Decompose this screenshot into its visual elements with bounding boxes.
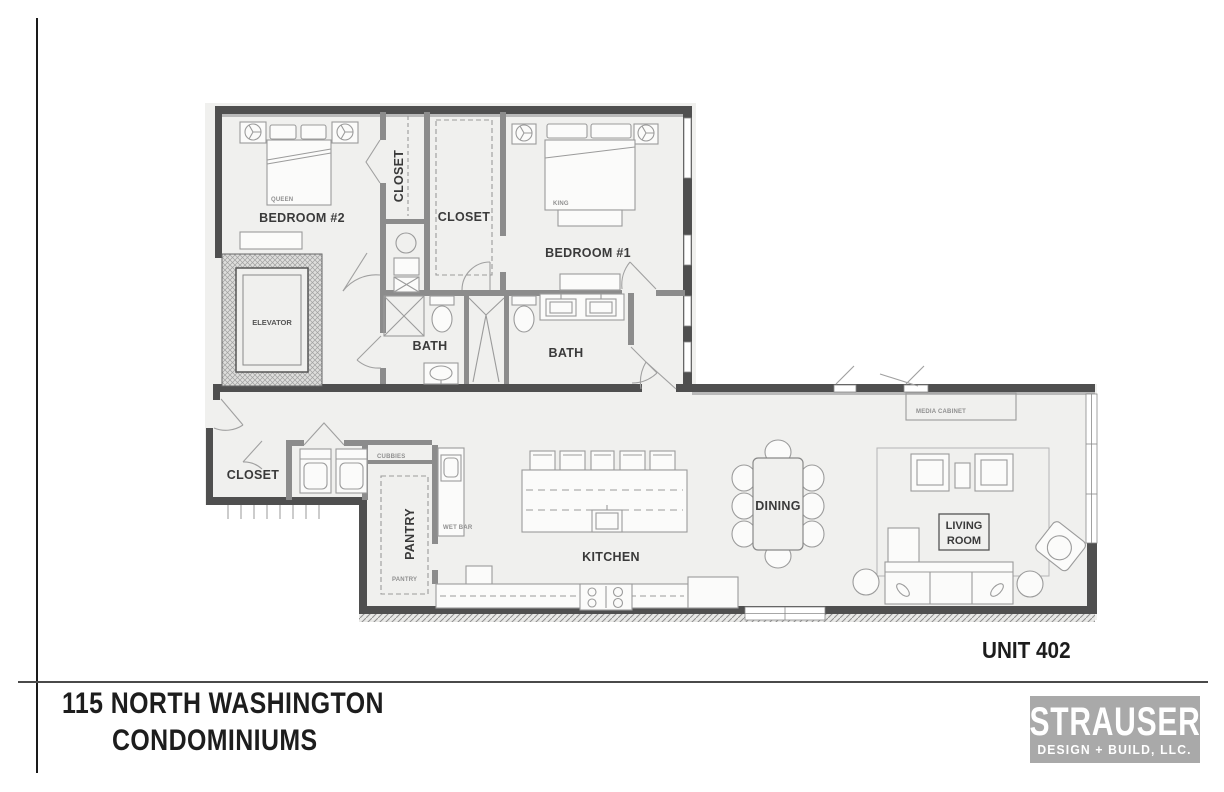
media-cabinet-label: MEDIA CABINET xyxy=(916,409,966,415)
unit-number-label: UNIT 402 xyxy=(982,637,1071,664)
room-label-bedroom-1: BEDROOM #1 xyxy=(545,246,631,260)
wet-bar-label: WET BAR xyxy=(443,525,473,531)
king-bed-label: KING xyxy=(553,201,569,207)
room-label-bath-2: BATH xyxy=(549,346,584,360)
sheet-title-line1: 115 NORTH WASHINGTON xyxy=(62,687,384,721)
room-label-pantry: PANTRY xyxy=(403,508,417,560)
room-label-living-line1: LIVING xyxy=(946,520,983,532)
drawing-sheet: ELEVATOR xyxy=(0,0,1224,792)
logo-name: STRAUSER xyxy=(1029,702,1200,742)
room-label-elevator: ELEVATOR xyxy=(252,318,292,327)
room-label-kitchen: KITCHEN xyxy=(582,550,640,564)
cubbies-label: CUBBIES xyxy=(377,454,405,460)
queen-bed-label: QUEEN xyxy=(271,197,293,203)
sheet-title-line2: CONDOMINIUMS xyxy=(112,724,318,758)
room-label-walkin-closet: CLOSET xyxy=(438,210,491,224)
room-label-bath-1: BATH xyxy=(413,339,448,353)
pantry-small-label: PANTRY xyxy=(392,577,417,583)
room-label-hall-closet: CLOSET xyxy=(392,150,406,203)
elevator: ELEVATOR xyxy=(222,254,322,386)
logo-tagline: DESIGN + BUILD, LLC. xyxy=(1038,743,1192,757)
strauser-logo: STRAUSER DESIGN + BUILD, LLC. xyxy=(1030,696,1200,763)
wet-bar xyxy=(438,448,464,536)
room-label-living-line2: ROOM xyxy=(947,535,981,547)
railing xyxy=(228,505,319,519)
living-room-label-box: LIVING ROOM xyxy=(939,514,989,550)
floor-plan: ELEVATOR xyxy=(0,0,1224,792)
desk-area xyxy=(466,566,492,585)
room-label-bedroom-2: BEDROOM #2 xyxy=(259,211,345,225)
room-label-dining: DINING xyxy=(755,499,801,513)
room-label-entry-closet: CLOSET xyxy=(227,468,280,482)
